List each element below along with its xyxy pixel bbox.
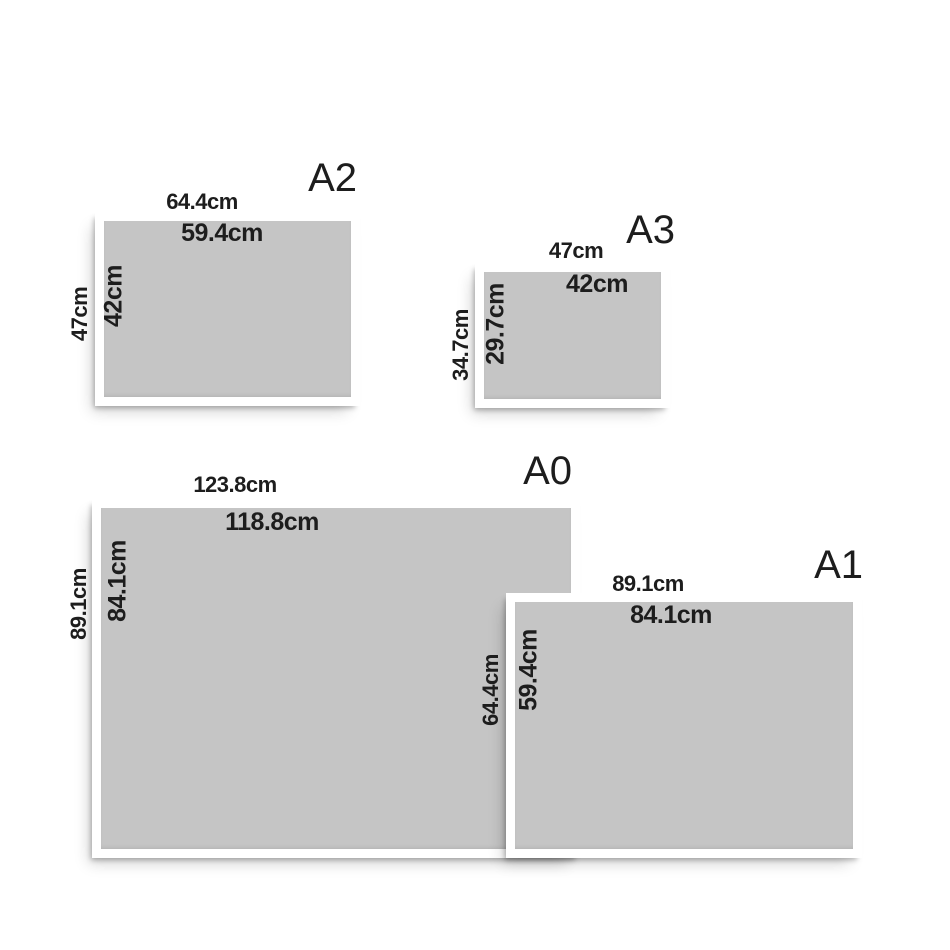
- poster-group-a1: A1 89.1cm 84.1cm 64.4cm 59.4cm: [0, 0, 950, 950]
- a1-inner-width-label: 84.1cm: [630, 603, 712, 628]
- paper-size-comparison-diagram: A2 64.4cm 59.4cm 47cm 42cm A3 47cm 42cm …: [0, 0, 950, 950]
- poster-title-a1: A1: [814, 545, 863, 585]
- poster-sheet-a1: [515, 602, 853, 849]
- poster-frame-a1: [506, 593, 862, 858]
- a1-outer-width-label: 89.1cm: [612, 573, 684, 595]
- a1-inner-height-label: 59.4cm: [517, 629, 542, 711]
- a1-outer-height-label: 64.4cm: [480, 654, 502, 726]
